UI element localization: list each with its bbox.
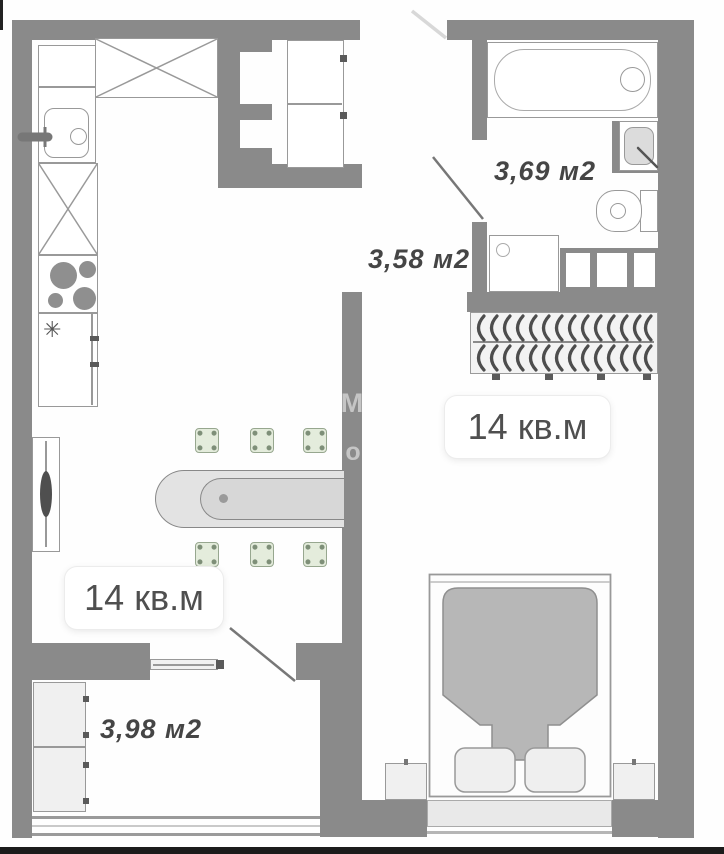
sliding-door-line bbox=[153, 664, 214, 666]
watermark-letter: М bbox=[338, 388, 366, 419]
balcony-cabinet-hinge bbox=[83, 732, 89, 738]
nightstand bbox=[613, 763, 655, 800]
wall-left bbox=[12, 20, 32, 838]
radiator bbox=[32, 437, 60, 552]
door-leaf-balcony bbox=[230, 628, 295, 681]
wall-top-right bbox=[447, 20, 694, 40]
balcony-cabinet-hinge bbox=[83, 762, 89, 768]
stove-burner bbox=[73, 287, 96, 310]
double-bed bbox=[428, 573, 612, 798]
balcony-window-line bbox=[32, 825, 320, 827]
hangers-graphic bbox=[471, 313, 656, 372]
bathtub-drain bbox=[620, 67, 645, 92]
fridge-hinge bbox=[90, 362, 99, 367]
chair bbox=[303, 542, 327, 567]
wall-top-left bbox=[12, 20, 360, 40]
bed-graphic bbox=[428, 573, 612, 798]
bedroom-window-line bbox=[427, 831, 612, 834]
bed-pillow bbox=[455, 748, 515, 792]
radiator-lens bbox=[40, 471, 52, 517]
door-leaf-entrance bbox=[412, 11, 446, 38]
chair bbox=[195, 428, 219, 453]
wall-middle-block bbox=[296, 643, 362, 680]
nightstand bbox=[385, 763, 427, 800]
wardrobe-foot bbox=[545, 374, 553, 380]
wardrobe-foot bbox=[597, 374, 605, 380]
bedroom-window bbox=[427, 800, 612, 827]
kitchen-cabinet bbox=[38, 45, 96, 87]
wall-bath-stub-lower bbox=[472, 222, 487, 295]
dining-table-dot bbox=[219, 494, 228, 503]
wall-right bbox=[658, 20, 694, 838]
chair bbox=[250, 542, 274, 567]
wall-niche-stub-top bbox=[238, 38, 272, 52]
balcony-cabinet bbox=[33, 747, 86, 812]
bathroom-area-label: 3,69 м2 bbox=[494, 156, 596, 187]
shelf-slot bbox=[566, 253, 590, 287]
chair bbox=[250, 428, 274, 453]
balcony-cabinet-hinge bbox=[83, 696, 89, 702]
kitchen-sink-drain bbox=[70, 128, 87, 145]
chair bbox=[195, 542, 219, 567]
shelf-slot bbox=[597, 253, 627, 287]
stove-burner bbox=[48, 293, 63, 308]
wall-bath-bottom bbox=[467, 292, 658, 312]
snowflake-icon: ✳ bbox=[43, 317, 61, 343]
bed-pillow bbox=[525, 748, 585, 792]
stove bbox=[38, 255, 98, 313]
hall-cabinet-divider bbox=[288, 103, 342, 105]
stove-burner bbox=[79, 261, 96, 278]
wardrobe-foot bbox=[492, 374, 500, 380]
wash-basin-bowl bbox=[624, 127, 654, 165]
wall-living-bottom bbox=[12, 643, 150, 680]
balcony-area-label: 3,98 м2 bbox=[100, 714, 202, 745]
wall-bottom-right bbox=[612, 800, 658, 837]
balcony-cabinet bbox=[33, 682, 86, 747]
bedroom-label: 14 кв.м bbox=[445, 396, 610, 458]
floor-plan: ✳ bbox=[0, 0, 724, 854]
tall-cabinet-crossed bbox=[38, 163, 98, 255]
screen-edge-bottom bbox=[0, 847, 724, 854]
hallway-area-label: 3,58 м2 bbox=[368, 244, 470, 275]
living-room-label: 14 кв.м bbox=[65, 567, 223, 629]
hall-cabinet-handle bbox=[340, 112, 347, 119]
hall-cabinet-handle bbox=[340, 55, 347, 62]
sliding-balcony-door bbox=[150, 659, 218, 670]
screen-edge-left bbox=[0, 0, 3, 30]
toilet-tank bbox=[640, 190, 658, 232]
watermark-letter: о bbox=[339, 438, 367, 467]
built-in-wardrobe-crossed bbox=[95, 38, 218, 98]
wall-bottom-center bbox=[320, 800, 427, 837]
washing-machine-dial bbox=[496, 243, 510, 257]
balcony-window-line bbox=[32, 816, 320, 819]
sliding-door-stop bbox=[216, 660, 224, 669]
refrigerator: ✳ bbox=[38, 313, 98, 407]
wardrobe-hangers bbox=[470, 312, 658, 374]
shelf-slot bbox=[634, 253, 655, 287]
door-leaf-bathroom bbox=[433, 157, 483, 219]
toilet-drain bbox=[610, 203, 626, 219]
stove-burner bbox=[50, 262, 77, 289]
hall-cabinet bbox=[287, 40, 344, 168]
wardrobe-foot bbox=[643, 374, 651, 380]
wall-niche-stub-low bbox=[238, 148, 272, 164]
chair bbox=[303, 428, 327, 453]
fridge-hinge bbox=[90, 336, 99, 341]
wall-middle-upper bbox=[342, 292, 362, 680]
fridge-door-line bbox=[91, 314, 93, 405]
wall-bath-stub-upper bbox=[472, 40, 487, 140]
wall-niche-stub-mid bbox=[238, 104, 272, 120]
balcony-window-line bbox=[32, 833, 320, 836]
wall-middle-lower bbox=[320, 680, 362, 802]
balcony-cabinet-hinge bbox=[83, 798, 89, 804]
